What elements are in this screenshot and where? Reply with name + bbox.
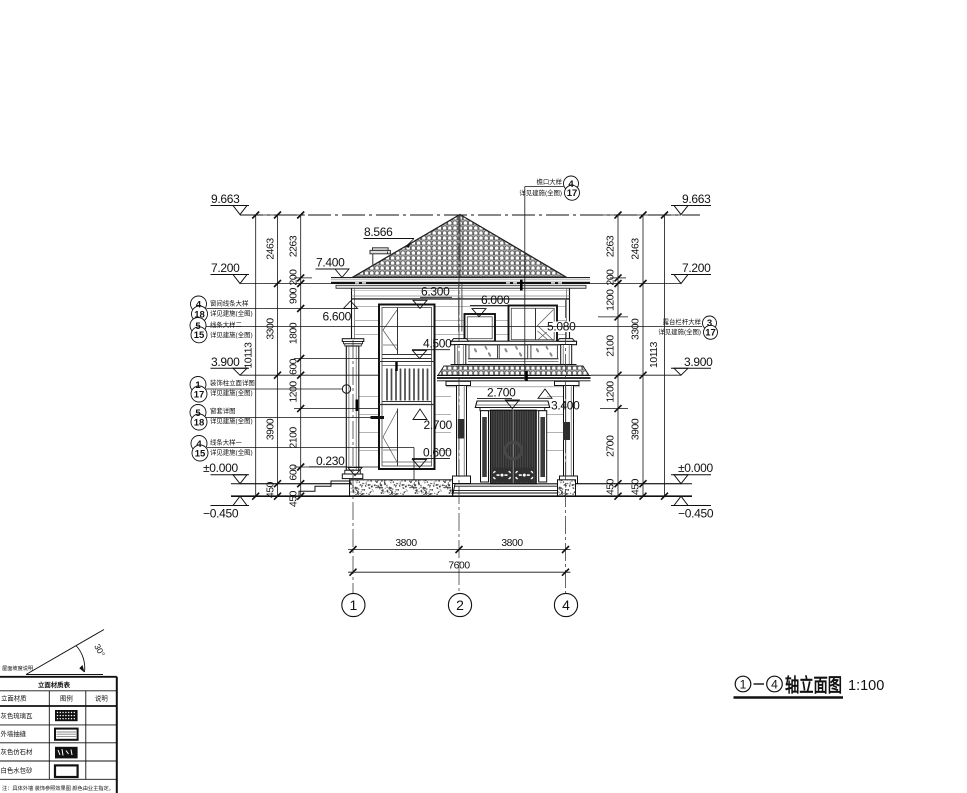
svg-text:1800: 1800 [289, 322, 300, 344]
svg-text:3.900: 3.900 [684, 355, 713, 369]
svg-text:8.566: 8.566 [364, 225, 393, 239]
svg-text:详见建施(全图): 详见建施(全图) [210, 388, 253, 397]
svg-text:详见建施(全图): 详见建施(全图) [210, 416, 253, 425]
svg-text:200: 200 [289, 269, 300, 286]
svg-text:详见建施(全图): 详见建施(全图) [210, 309, 253, 318]
svg-text:17: 17 [705, 328, 716, 339]
svg-text:10113: 10113 [244, 342, 255, 369]
svg-text:外墙抽缝: 外墙抽缝 [1, 729, 27, 738]
svg-text:2.700: 2.700 [487, 386, 516, 400]
svg-text:3900: 3900 [631, 418, 642, 440]
svg-text:立面材质: 立面材质 [1, 694, 27, 703]
svg-text:窗间线条大样: 窗间线条大样 [210, 299, 249, 308]
svg-text:15: 15 [195, 448, 206, 459]
svg-text:图例: 图例 [60, 694, 73, 703]
svg-text:详见建施(全图): 详见建施(全图) [210, 448, 253, 457]
svg-text:600: 600 [289, 358, 300, 375]
svg-text:说明: 说明 [95, 694, 108, 703]
svg-text:灰色仿石材: 灰色仿石材 [1, 747, 34, 756]
svg-text:7.200: 7.200 [682, 261, 711, 275]
svg-text:3800: 3800 [395, 538, 417, 549]
svg-text:17: 17 [194, 389, 205, 400]
svg-text:10113: 10113 [649, 341, 660, 368]
svg-text:线条大样一: 线条大样一 [210, 438, 243, 447]
svg-text:7.400: 7.400 [316, 256, 345, 270]
svg-text:3300: 3300 [266, 318, 277, 340]
svg-text:轴立面图: 轴立面图 [785, 674, 842, 697]
svg-text:1: 1 [350, 597, 358, 613]
svg-text:檐口大样: 檐口大样 [536, 177, 562, 186]
svg-text:3.400: 3.400 [551, 399, 580, 413]
svg-text:3300: 3300 [631, 318, 642, 340]
svg-text:0.230: 0.230 [316, 454, 345, 468]
svg-text:6.600: 6.600 [323, 310, 352, 324]
svg-text:2: 2 [456, 597, 464, 613]
svg-text:1:100: 1:100 [848, 678, 884, 694]
svg-text:线条大样二: 线条大样二 [210, 320, 243, 329]
svg-text:详见建施(全图): 详见建施(全图) [210, 330, 253, 339]
svg-text:6.000: 6.000 [481, 293, 510, 307]
svg-text:3800: 3800 [501, 538, 523, 549]
svg-text:1200: 1200 [606, 289, 617, 311]
svg-text:详见建施(全图): 详见建施(全图) [519, 188, 562, 197]
svg-text:2.700: 2.700 [424, 418, 453, 432]
svg-text:2100: 2100 [606, 335, 617, 357]
svg-text:灰色琉璃瓦: 灰色琉璃瓦 [1, 711, 34, 720]
svg-text:18: 18 [194, 417, 205, 428]
svg-text:9.663: 9.663 [211, 192, 240, 206]
svg-text:3900: 3900 [266, 418, 277, 440]
svg-text:2463: 2463 [266, 238, 277, 260]
svg-text:450: 450 [289, 490, 300, 507]
svg-text:6.300: 6.300 [421, 285, 450, 299]
svg-text:0.600: 0.600 [423, 446, 452, 460]
svg-text:15: 15 [194, 330, 205, 341]
svg-text:注：具体外墙 装饰参照效果图 颜色由业主指定。: 注：具体外墙 装饰参照效果图 颜色由业主指定。 [2, 784, 114, 792]
svg-text:450: 450 [606, 478, 617, 495]
svg-text:±0.000: ±0.000 [203, 461, 238, 475]
svg-text:3.900: 3.900 [211, 355, 240, 369]
svg-text:200: 200 [606, 269, 617, 286]
svg-text:白色水包砂: 白色水包砂 [1, 766, 34, 775]
svg-text:详见建施(全图): 详见建施(全图) [658, 327, 701, 336]
svg-text:450: 450 [266, 481, 277, 498]
svg-text:装饰柱立面详图: 装饰柱立面详图 [210, 378, 255, 387]
svg-text:7.200: 7.200 [211, 261, 240, 275]
svg-text:9.663: 9.663 [682, 192, 711, 206]
svg-text:18: 18 [194, 309, 205, 320]
svg-text:4.500: 4.500 [423, 337, 452, 351]
svg-text:2263: 2263 [289, 235, 300, 257]
svg-text:1: 1 [740, 678, 747, 692]
svg-text:−0.450: −0.450 [678, 507, 714, 521]
svg-text:2700: 2700 [606, 435, 617, 457]
svg-text:屋面坡度说明: 屋面坡度说明 [2, 664, 33, 672]
svg-text:立面材质表: 立面材质表 [38, 680, 71, 689]
svg-text:17: 17 [567, 188, 578, 199]
svg-text:2100: 2100 [289, 426, 300, 448]
svg-text:600: 600 [289, 464, 300, 481]
svg-text:2463: 2463 [631, 238, 642, 260]
svg-text:4: 4 [562, 597, 570, 613]
svg-text:露台栏杆大样: 露台栏杆大样 [663, 317, 702, 326]
svg-text:900: 900 [289, 287, 300, 304]
svg-text:2263: 2263 [606, 235, 617, 257]
svg-text:30°: 30° [92, 642, 107, 658]
svg-text:窗套详图: 窗套详图 [210, 406, 236, 415]
svg-text:−0.450: −0.450 [203, 507, 239, 521]
svg-text:1200: 1200 [289, 381, 300, 403]
svg-text:±0.000: ±0.000 [678, 461, 713, 475]
svg-text:1200: 1200 [606, 381, 617, 403]
svg-text:450: 450 [631, 478, 642, 495]
svg-text:4: 4 [771, 678, 778, 692]
svg-text:7600: 7600 [448, 561, 470, 572]
